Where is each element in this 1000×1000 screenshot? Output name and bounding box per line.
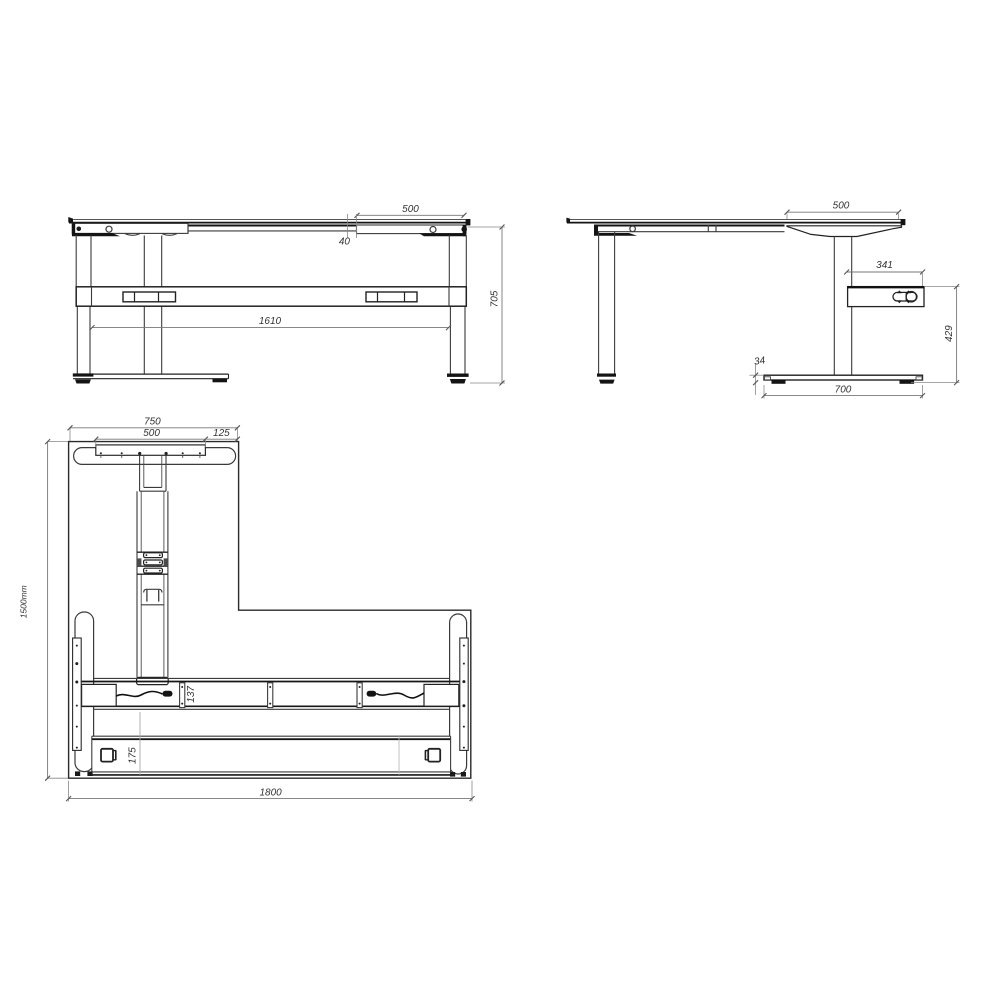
svg-text:34: 34 <box>753 355 766 368</box>
svg-text:125: 125 <box>213 428 230 439</box>
svg-text:137: 137 <box>186 686 197 703</box>
svg-text:700: 700 <box>835 384 852 395</box>
svg-text:175: 175 <box>127 747 138 764</box>
svg-text:705: 705 <box>490 290 501 307</box>
svg-text:500: 500 <box>402 204 419 215</box>
svg-text:750: 750 <box>144 417 161 428</box>
svg-text:500: 500 <box>143 428 160 439</box>
svg-text:500: 500 <box>833 201 850 212</box>
svg-text:341: 341 <box>876 260 893 271</box>
svg-text:1500mm: 1500mm <box>18 585 28 618</box>
svg-text:429: 429 <box>944 325 955 342</box>
svg-text:1610: 1610 <box>259 316 282 327</box>
svg-text:40: 40 <box>339 237 351 248</box>
svg-text:1800: 1800 <box>259 787 282 798</box>
